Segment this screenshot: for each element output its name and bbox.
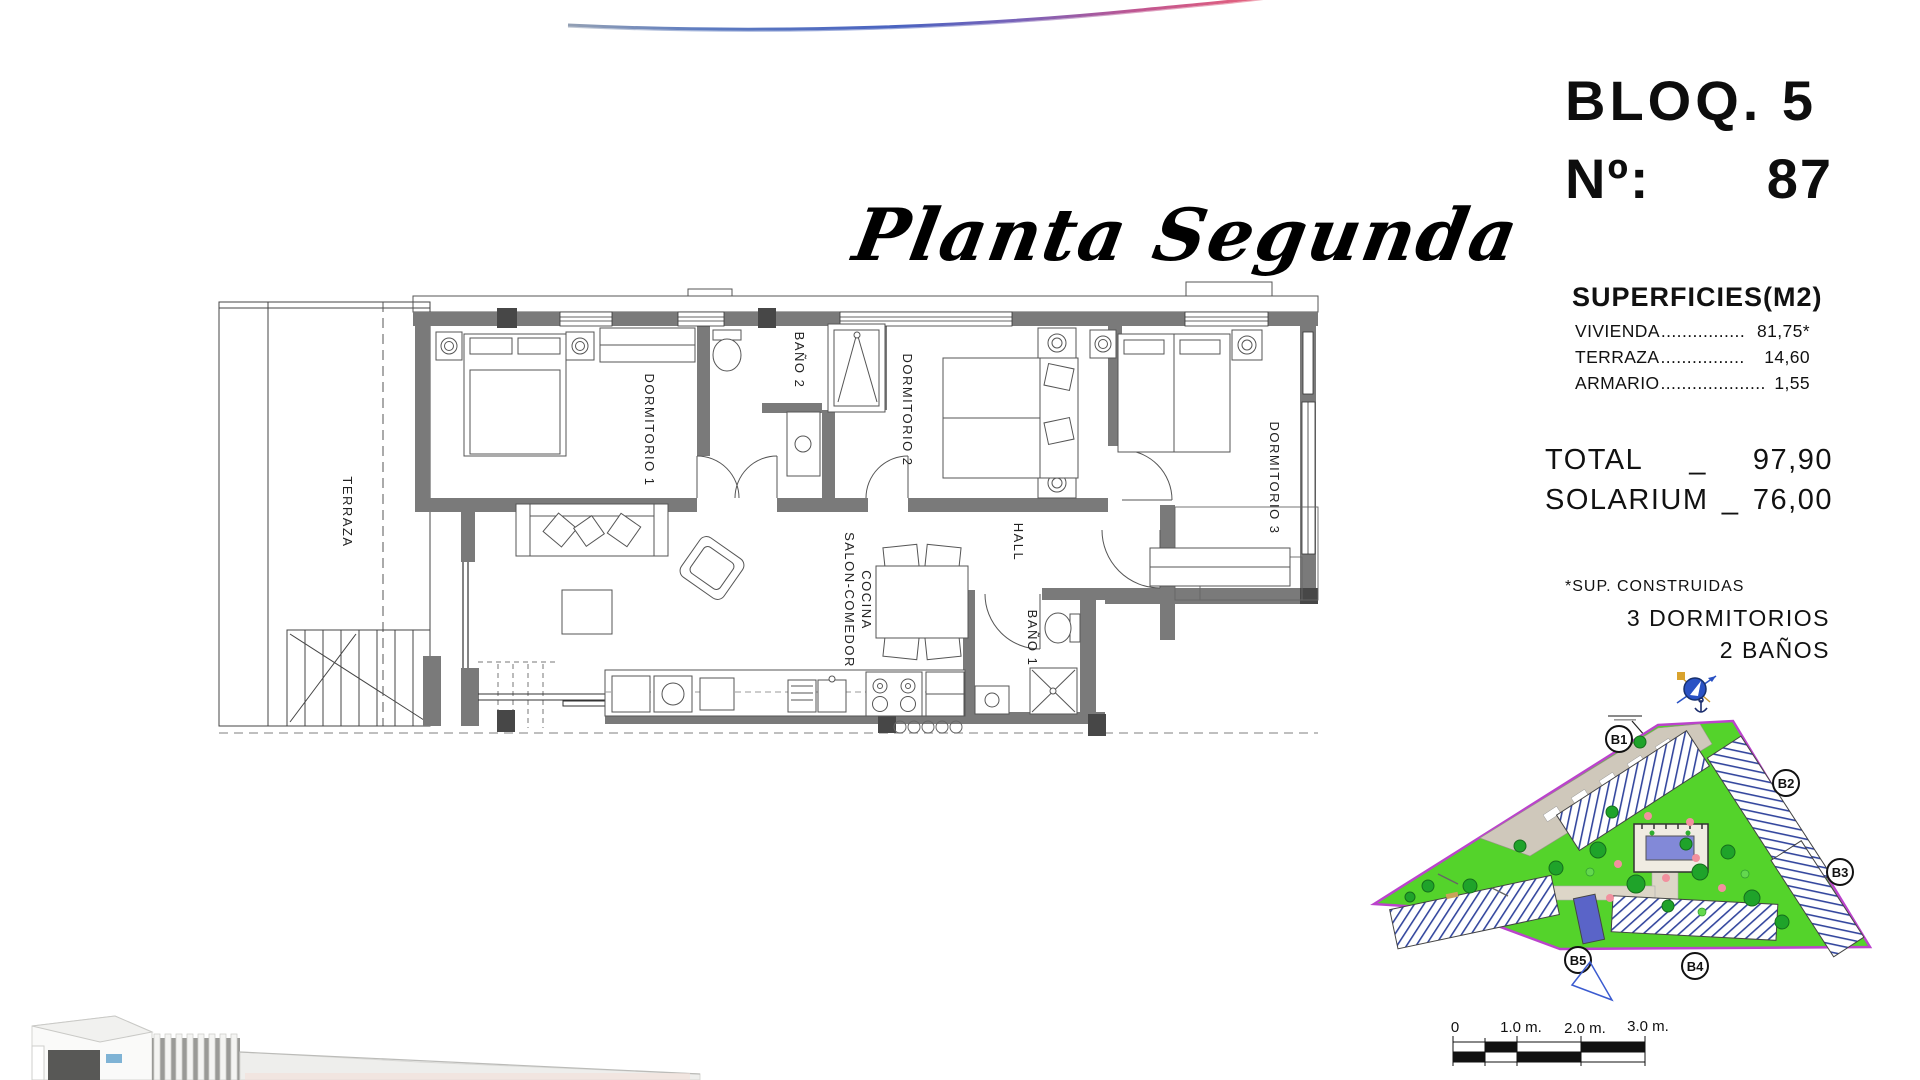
solarium-label: SOLARIUM	[1545, 480, 1708, 520]
surface-row-armario: ARMARIO .................... 1,55	[1575, 370, 1810, 396]
plan-title: Planta Segunda	[848, 192, 1526, 277]
terrace-sliding-door	[463, 562, 468, 668]
floor-plan: TERRAZA DORMITORIO 1 BAÑO 2 DORMITORIO 2…	[200, 280, 1330, 745]
site-block-b2: B2	[1773, 770, 1799, 796]
scale-3m: 3.0 m.	[1627, 1018, 1669, 1035]
unit-number: 87	[1767, 146, 1833, 211]
surface-label: TERRAZA	[1575, 344, 1659, 370]
unit-features: 3 DORMITORIOS 2 BAÑOS	[1558, 602, 1830, 666]
room-label-terraza: TERRAZA	[340, 476, 355, 547]
block-label: BLOQ. 5	[1565, 68, 1817, 133]
furniture-dormitorio2	[943, 328, 1078, 498]
solarium-value: 76,00	[1753, 480, 1833, 520]
svg-text:B3: B3	[1832, 865, 1849, 880]
furniture-kitchen	[605, 670, 965, 716]
roof-outline	[413, 282, 1318, 312]
room-label-bano2: BAÑO 2	[792, 332, 807, 389]
leader-dots: ................	[1660, 344, 1763, 370]
decorative-swoosh	[550, 0, 1330, 40]
site-block-b1: B1	[1606, 726, 1632, 752]
surface-label: VIVIENDA	[1575, 318, 1660, 344]
compass-icon	[1677, 672, 1716, 712]
total-label: TOTAL	[1545, 440, 1643, 480]
totals-block: TOTAL _ 97,90 SOLARIUM _ 76,00	[1545, 440, 1833, 520]
unit-number-row: Nº: 87	[1565, 146, 1833, 211]
scale-bar: 0 1.0 m. 2.0 m. 3.0 m.	[1440, 1008, 1670, 1078]
room-label-salon-2: COCINA	[859, 570, 874, 630]
site-plan: B1 B2 B3 B4 B5	[1370, 665, 1920, 1010]
terrace-outline	[219, 302, 430, 726]
room-label-dormitorio1: DORMITORIO 1	[642, 373, 657, 486]
room-label-dormitorio3: DORMITORIO 3	[1267, 421, 1282, 534]
room-label-salon-1: SALON-COMEDOR	[842, 532, 857, 668]
surfaces-heading: SUPERFICIES(M2)	[1572, 282, 1823, 313]
bathrooms-count: 2 BAÑOS	[1558, 634, 1830, 666]
total-row: TOTAL _ 97,90	[1545, 440, 1833, 480]
room-label-dormitorio2: DORMITORIO 2	[900, 353, 915, 466]
leader-dots: ....................	[1660, 370, 1773, 396]
surface-value: 14,60	[1764, 344, 1810, 370]
bedrooms-count: 3 DORMITORIOS	[1558, 602, 1830, 634]
site-block-b3: B3	[1827, 859, 1853, 885]
unit-label: Nº:	[1565, 146, 1651, 211]
furniture-dining	[876, 544, 968, 659]
surface-row-terraza: TERRAZA ................ 14,60	[1575, 344, 1810, 370]
total-value: 97,90	[1753, 440, 1833, 480]
room-label-bano1: BAÑO 1	[1025, 610, 1040, 667]
surface-value: 1,55	[1774, 370, 1810, 396]
room-label-hall: HALL	[1011, 523, 1026, 562]
surfaces-table: VIVIENDA ................ 81,75* TERRAZA…	[1575, 318, 1810, 396]
furniture-dormitorio3	[1090, 330, 1290, 586]
leader-dots: ................	[1661, 318, 1756, 344]
svg-text:B2: B2	[1778, 776, 1795, 791]
surface-value: 81,75*	[1757, 318, 1810, 344]
furniture-salon	[516, 504, 747, 634]
scale-0: 0	[1451, 1019, 1459, 1036]
surfaces-footnote: *SUP. CONSTRUIDAS	[1565, 578, 1744, 596]
solarium-row: SOLARIUM _ 76,00	[1545, 480, 1833, 520]
scale-1m: 1.0 m.	[1500, 1019, 1542, 1036]
site-block-b5: B5	[1565, 947, 1612, 1000]
total-separator: _	[1689, 440, 1707, 480]
scale-2m: 2.0 m.	[1564, 1020, 1606, 1037]
site-block-b4: B4	[1682, 953, 1708, 979]
surface-row-vivienda: VIVIENDA ................ 81,75*	[1575, 318, 1810, 344]
svg-text:B4: B4	[1687, 959, 1704, 974]
building-render	[20, 1012, 720, 1080]
scale-bar-segments	[1453, 1036, 1645, 1066]
svg-text:B1: B1	[1611, 732, 1628, 747]
svg-text:B5: B5	[1570, 953, 1587, 968]
terrace-stairs	[287, 630, 430, 726]
stairs-dashed-steps	[478, 662, 556, 728]
surface-label: ARMARIO	[1575, 370, 1659, 396]
solarium-separator: _	[1722, 480, 1740, 520]
